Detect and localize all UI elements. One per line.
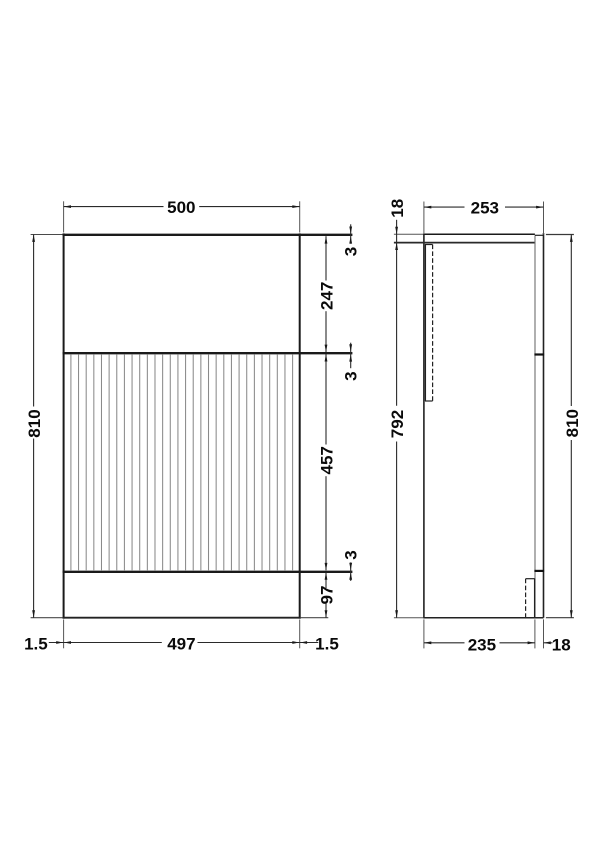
svg-text:235: 235 xyxy=(468,636,496,655)
svg-text:3: 3 xyxy=(341,247,360,256)
svg-text:253: 253 xyxy=(471,199,499,218)
svg-text:792: 792 xyxy=(388,410,407,438)
svg-text:3: 3 xyxy=(341,550,360,559)
svg-text:1.5: 1.5 xyxy=(315,635,339,654)
svg-text:18: 18 xyxy=(552,636,571,655)
svg-text:247: 247 xyxy=(318,282,337,310)
svg-text:97: 97 xyxy=(318,586,337,605)
svg-text:810: 810 xyxy=(563,409,582,437)
svg-text:1.5: 1.5 xyxy=(24,635,48,654)
svg-text:3: 3 xyxy=(341,371,360,380)
svg-text:810: 810 xyxy=(25,409,44,437)
svg-text:457: 457 xyxy=(318,446,337,474)
svg-text:500: 500 xyxy=(167,198,195,217)
svg-text:18: 18 xyxy=(388,199,407,218)
svg-text:497: 497 xyxy=(167,635,195,654)
